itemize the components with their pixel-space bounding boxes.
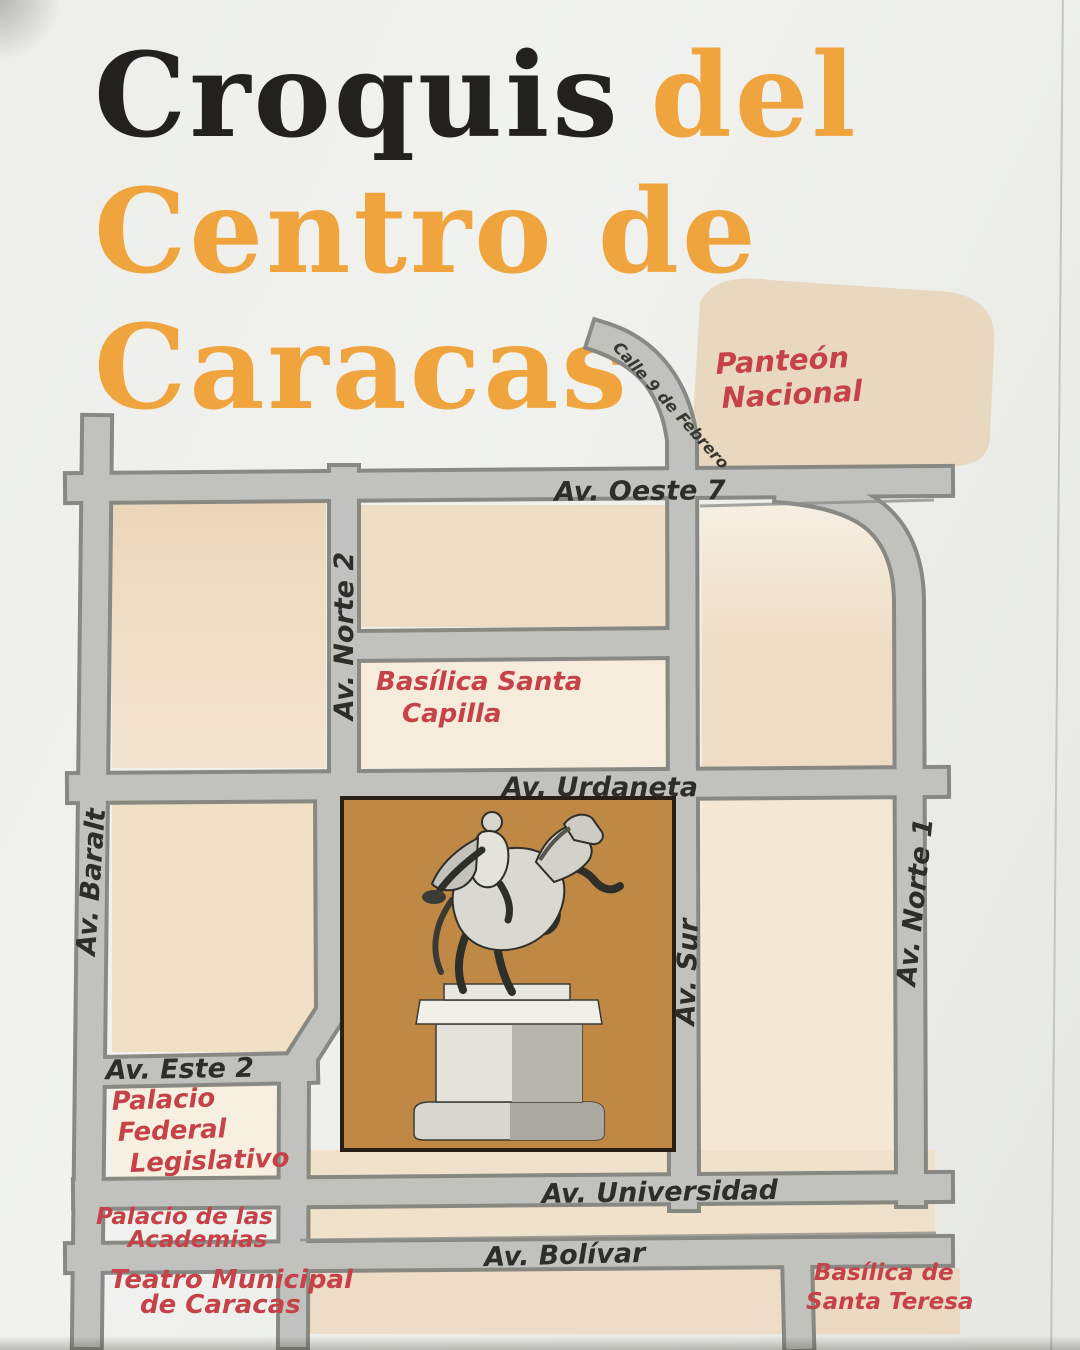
label-capilla-line1: Basílica Santa: [376, 667, 582, 697]
label-palacio-federal-line2: Federal: [117, 1114, 228, 1148]
label-av-norte-2: Av. Norte 2: [329, 552, 360, 722]
label-teatro-line2: de Caracas: [140, 1290, 301, 1320]
block-right-middle: [702, 800, 893, 1180]
block-left-middle: [112, 800, 318, 1052]
map-drawing: Av. Oeste 7 Av. Norte 2 Av. Baralt Av. U…: [0, 0, 1080, 1350]
block-top-right: [702, 505, 893, 768]
label-palacio-federal-line3: Legislativo: [129, 1143, 290, 1179]
pedestal-base-shade: [510, 1102, 604, 1140]
pedestal-cornice: [416, 1000, 602, 1024]
label-av-universidad: Av. Universidad: [539, 1175, 778, 1210]
label-capilla-line2: Capilla: [402, 699, 502, 729]
label-palacio-federal-line1: Palacio: [111, 1083, 216, 1117]
rider-head: [482, 812, 502, 832]
label-av-urdaneta: Av. Urdaneta: [500, 772, 698, 803]
label-av-sur: Av. Sur: [670, 917, 705, 1028]
label-academias-line2: Academias: [126, 1227, 267, 1253]
label-santa-teresa-line1: Basílica de: [814, 1260, 954, 1286]
block-below-bolivar: [305, 1268, 790, 1334]
label-av-oeste-7: Av. Oeste 7: [552, 475, 726, 508]
label-santa-teresa-line2: Santa Teresa: [806, 1289, 973, 1315]
rider-hat: [422, 890, 446, 904]
label-av-bolivar: Av. Bolívar: [482, 1238, 648, 1273]
label-av-este-2: Av. Este 2: [103, 1053, 254, 1087]
block-top-left: [112, 502, 326, 768]
block-top-middle: [360, 505, 670, 627]
plaza-bolivar: [342, 798, 674, 1150]
hand-drawn-map-photo: Croquisdel Centro de Caracas: [0, 0, 1080, 1350]
pedestal-body-shade: [512, 1024, 582, 1102]
